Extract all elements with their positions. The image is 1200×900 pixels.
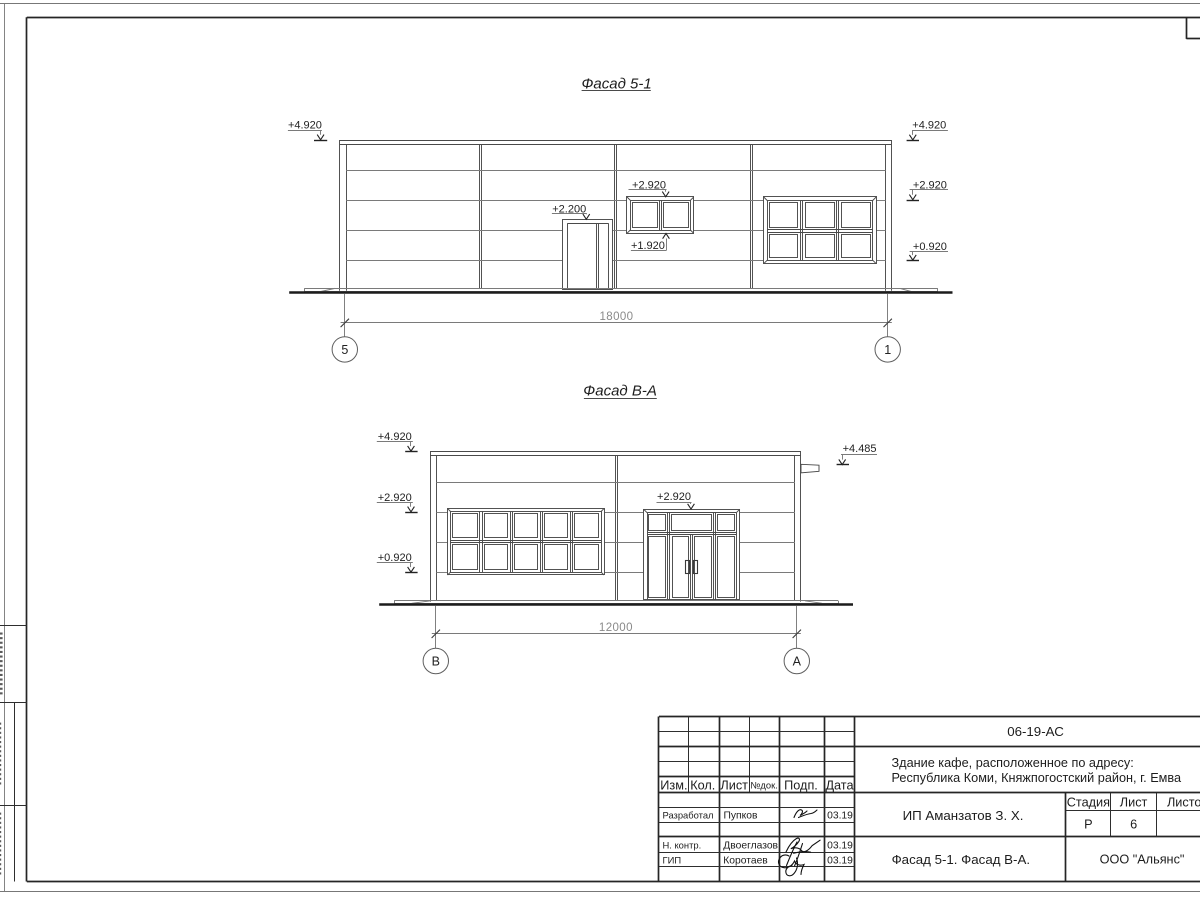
svg-text:Фасад В-А: Фасад В-А [583,382,657,399]
svg-text:ИП Аманзатов З. Х.: ИП Аманзатов З. Х. [903,808,1024,823]
svg-text:Изм.: Изм. [660,778,687,792]
svg-text:№док.: №док. [750,780,777,791]
svg-text:03.19: 03.19 [827,811,853,822]
svg-text:12000: 12000 [599,622,633,634]
svg-text:Республика Коми, Княжпогостски: Республика Коми, Княжпогостский район, г… [892,771,1182,785]
svg-text:Разработал: Разработал [663,809,714,820]
svg-text:Фасад 5-1. Фасад В-А.: Фасад 5-1. Фасад В-А. [892,852,1030,867]
svg-text:Н. контр.: Н. контр. [663,839,702,850]
svg-text:1: 1 [884,343,891,357]
svg-text:06-19-АС: 06-19-АС [1007,724,1064,739]
svg-text:Здание кафе, расположенное по: Здание кафе, расположенное по адресу: [892,756,1134,770]
svg-text:+2.920: +2.920 [657,491,691,503]
svg-text:ГИП: ГИП [663,854,682,865]
svg-text:Кол.: Кол. [690,778,715,792]
svg-text:Листов: Листов [1167,795,1200,809]
svg-text:+4.920: +4.920 [288,120,322,132]
svg-text:Фасад 5-1: Фасад 5-1 [581,76,651,93]
svg-text:Двоеглазов: Двоеглазов [723,841,778,852]
svg-text:6: 6 [1130,818,1137,832]
svg-text:Дата: Дата [825,778,854,792]
svg-text:А: А [793,655,802,669]
svg-text:Лист: Лист [720,778,748,792]
svg-text:Пупков: Пупков [724,811,758,822]
svg-text:Стадия: Стадия [1067,795,1110,809]
svg-text:03.19: 03.19 [827,841,853,852]
svg-text:ООО "Альянс": ООО "Альянс" [1100,853,1185,867]
svg-text:+2.920: +2.920 [378,492,412,504]
svg-text:+4.920: +4.920 [912,120,946,132]
svg-text:5: 5 [341,343,348,357]
svg-text:В: В [432,655,440,669]
svg-text:Подп.: Подп. [784,778,818,792]
svg-text:18000: 18000 [600,311,634,323]
svg-text:Лист: Лист [1120,795,1148,809]
svg-text:Р: Р [1084,818,1092,832]
svg-text:+4.485: +4.485 [843,443,877,455]
svg-text:03.19: 03.19 [827,856,853,867]
svg-text:Коротаев: Коротаев [723,856,768,867]
